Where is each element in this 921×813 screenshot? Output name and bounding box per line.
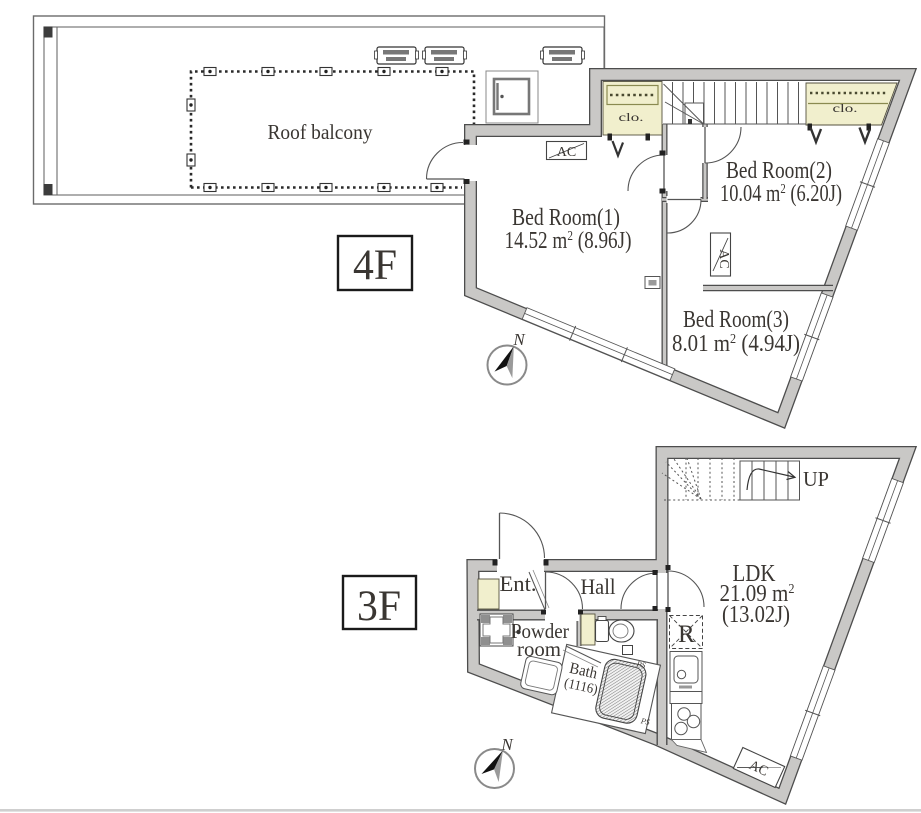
svg-text:4F: 4F xyxy=(353,242,397,289)
svg-text:Ent.: Ent. xyxy=(500,571,537,596)
svg-text:clo.: clo. xyxy=(619,110,644,124)
svg-text:room: room xyxy=(517,637,561,661)
svg-text:Bed Room(3): Bed Room(3) xyxy=(683,307,789,333)
svg-text:N: N xyxy=(512,330,526,349)
svg-text:UP: UP xyxy=(803,467,829,491)
svg-text:Roof balcony: Roof balcony xyxy=(268,120,373,144)
svg-text:R: R xyxy=(678,621,695,648)
svg-text:Hall: Hall xyxy=(581,574,616,599)
svg-text:clo.: clo. xyxy=(833,101,858,115)
svg-text:AC: AC xyxy=(557,145,576,160)
svg-text:N: N xyxy=(500,735,514,754)
svg-text:3F: 3F xyxy=(357,583,401,630)
svg-text:(13.02J): (13.02J) xyxy=(722,602,790,628)
svg-text:8.01 m2 (4.94J): 8.01 m2 (4.94J) xyxy=(672,331,800,357)
